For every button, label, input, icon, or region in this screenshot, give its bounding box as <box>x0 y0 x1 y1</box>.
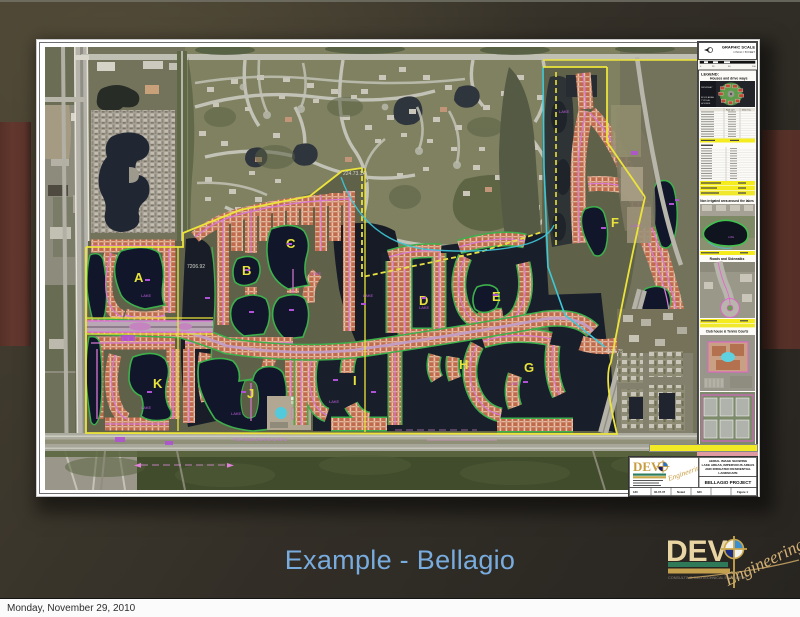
svg-text:HOUSES: HOUSES <box>701 103 711 105</box>
svg-text:1 INCH = 50 FEET: 1 INCH = 50 FEET <box>733 50 755 54</box>
svg-text:Roads and Sidewalks: Roads and Sidewalks <box>710 257 745 261</box>
svg-text:LANDSCAPE: LANDSCAPE <box>718 471 737 475</box>
svg-text:Figure 1: Figure 1 <box>737 490 748 494</box>
svg-text:TYPICAL: TYPICAL <box>701 99 711 102</box>
svg-text:BELLAGIO PROJECT: BELLAGIO PROJECT <box>705 480 752 485</box>
svg-text:LAKE: LAKE <box>419 305 430 310</box>
svg-text:GRAPHIC SCALE: GRAPHIC SCALE <box>722 45 755 50</box>
svg-text:LAKE: LAKE <box>631 223 642 228</box>
svg-text:DRIVEWAY: DRIVEWAY <box>701 86 713 89</box>
svg-text:630: 630 <box>697 490 702 494</box>
svg-text:LAKE: LAKE <box>728 236 735 239</box>
svg-text:224.73.1A: 224.73.1A <box>343 171 366 177</box>
svg-text:LAKE: LAKE <box>311 271 322 276</box>
svg-text:LAKE: LAKE <box>559 109 570 114</box>
svg-text:H: H <box>459 357 468 372</box>
svg-text:130: 130 <box>633 490 638 494</box>
svg-text:Roof sq ft: Roof sq ft <box>726 109 735 112</box>
svg-text:02-07-07: 02-07-07 <box>654 490 666 494</box>
svg-text:PGA BOULEVARD CANAL: PGA BOULEVARD CANAL <box>233 437 288 442</box>
svg-text:LAKE: LAKE <box>329 399 340 404</box>
svg-text:ROOF AREA: ROOF AREA <box>701 96 714 99</box>
svg-text:A: A <box>134 270 144 285</box>
svg-text:Drive l sq: Drive l sq <box>742 110 750 112</box>
svg-text:LAKE: LAKE <box>231 411 242 416</box>
svg-text:Club house & Tennis Courts: Club house & Tennis Courts <box>706 330 749 334</box>
svg-text:Houses and drive ways: Houses and drive ways <box>710 77 748 81</box>
svg-text:7206.92: 7206.92 <box>187 264 205 270</box>
svg-text:Noted: Noted <box>677 490 685 494</box>
svg-text:K: K <box>153 376 163 391</box>
svg-text:LAKE: LAKE <box>141 293 152 298</box>
svg-text:LAKE: LAKE <box>509 381 520 386</box>
svg-text:J: J <box>247 386 254 401</box>
svg-text:G: G <box>524 360 534 375</box>
svg-text:E: E <box>492 289 501 304</box>
svg-text:Non irrigated area around the: Non irrigated area around the lakes <box>700 199 754 203</box>
svg-text:LAKE: LAKE <box>363 293 374 298</box>
svg-text:LAKE: LAKE <box>141 405 152 410</box>
svg-text:I: I <box>353 373 357 388</box>
svg-text:4924.75: 4924.75 <box>605 349 623 355</box>
svg-text:F: F <box>611 215 619 230</box>
